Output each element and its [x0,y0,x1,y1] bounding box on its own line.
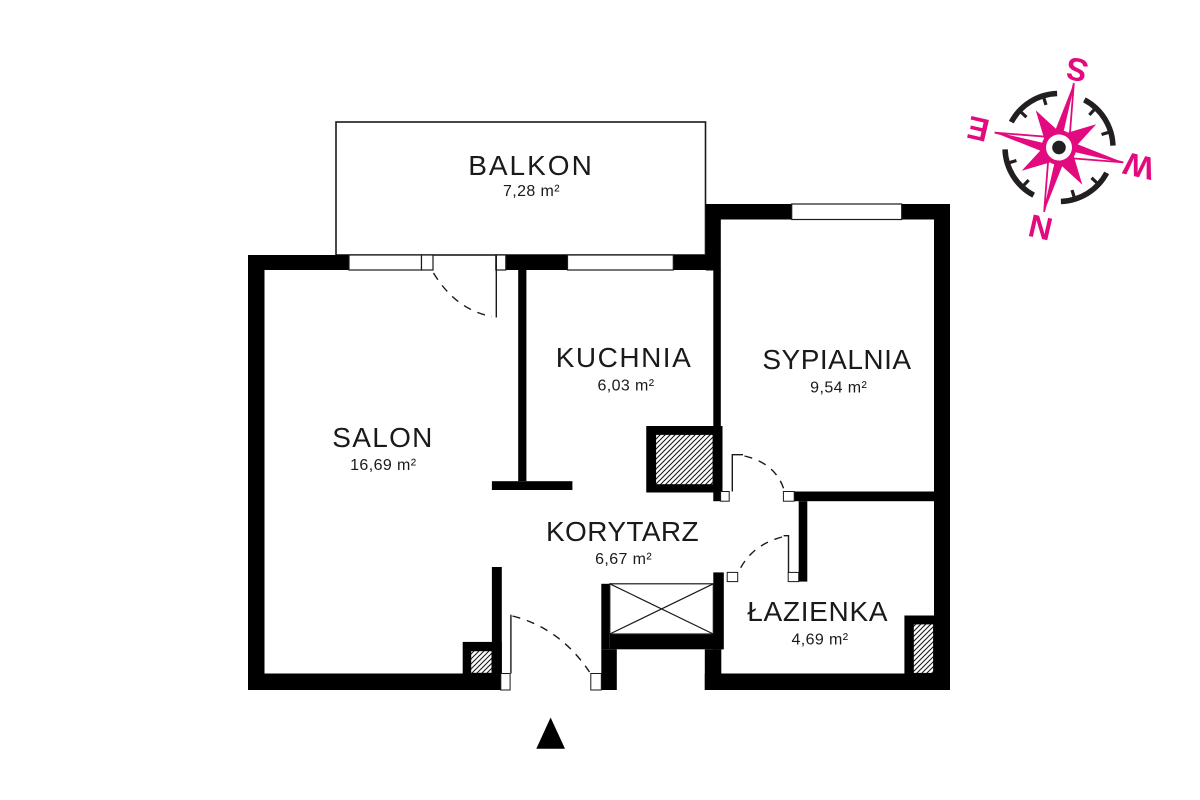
svg-text:KORYTARZ: KORYTARZ [546,516,699,547]
svg-text:SYPIALNIA: SYPIALNIA [762,344,911,375]
svg-text:4,69 m²: 4,69 m² [791,632,848,649]
svg-text:SALON: SALON [332,422,433,453]
svg-text:7,28 m²: 7,28 m² [503,183,560,200]
svg-text:6,67 m²: 6,67 m² [595,551,652,568]
svg-text:9,54 m²: 9,54 m² [810,380,867,397]
svg-text:KUCHNIA: KUCHNIA [556,342,693,373]
svg-text:16,69 m²: 16,69 m² [350,457,417,474]
svg-text:BALKON: BALKON [468,150,594,181]
svg-text:6,03 m²: 6,03 m² [597,378,654,395]
svg-text:ŁAZIENKA: ŁAZIENKA [747,596,888,627]
